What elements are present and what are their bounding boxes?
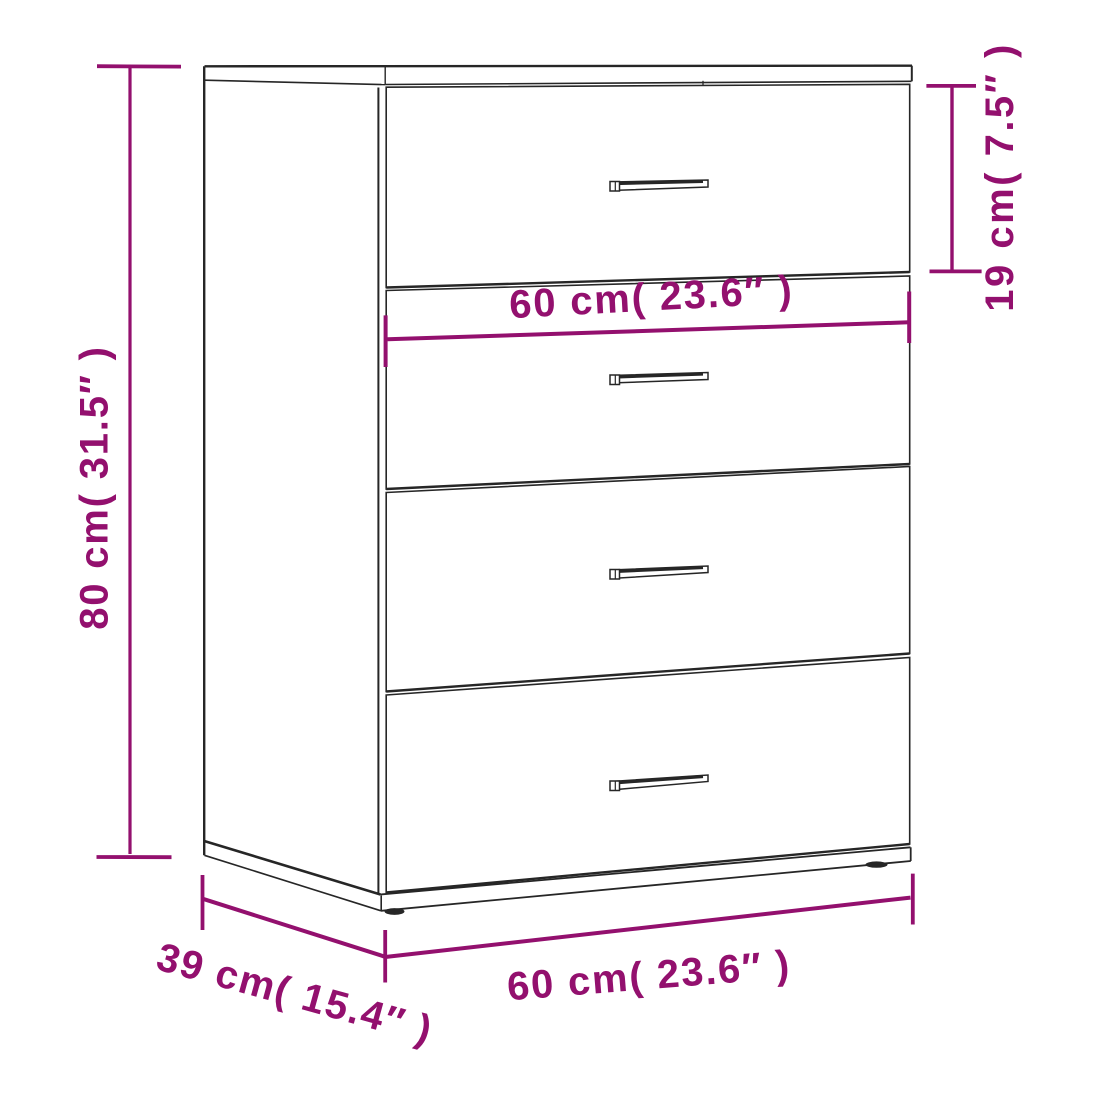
svg-text:80 cm( 31.5″ ): 80 cm( 31.5″ ) — [73, 345, 117, 630]
svg-text:19 cm( 7.5″ ): 19 cm( 7.5″ ) — [978, 42, 1022, 312]
